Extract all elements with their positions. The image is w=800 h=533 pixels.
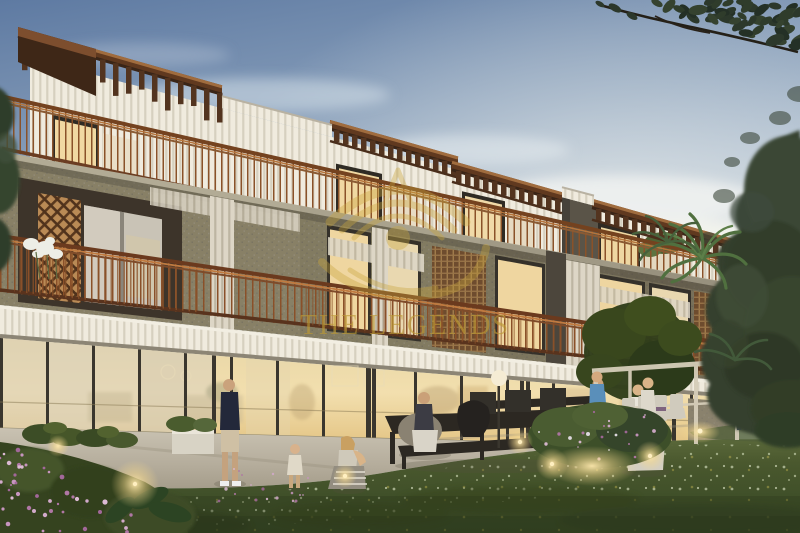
svg-text:THE LEGENDS: THE LEGENDS — [300, 310, 512, 341]
